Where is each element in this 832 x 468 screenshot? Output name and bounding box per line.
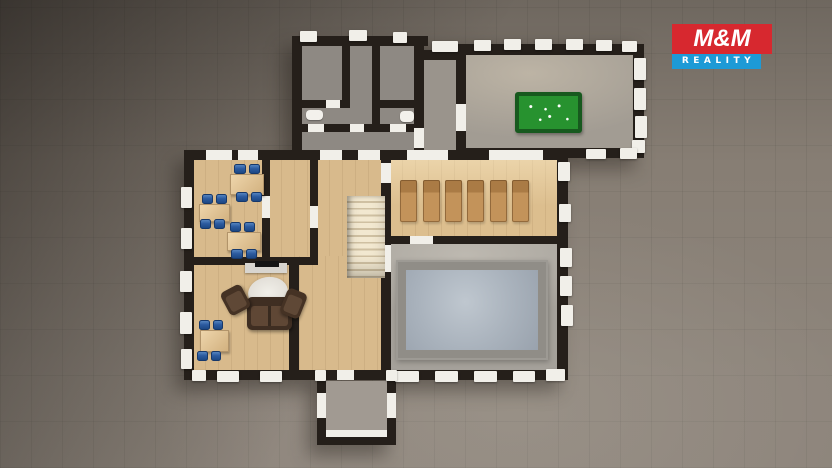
sanitary-fixture (400, 111, 414, 122)
wall-pillar (504, 39, 521, 50)
window-opening (489, 150, 543, 160)
lounger (423, 180, 440, 222)
wall-pillar (560, 248, 572, 267)
wall-pillar (635, 116, 647, 138)
door-opening (320, 150, 342, 160)
door-opening (308, 124, 324, 132)
door-opening (381, 163, 391, 183)
lounger (445, 180, 462, 222)
wall-pillar (192, 370, 206, 381)
wall-pillar (315, 370, 326, 381)
wall-pillar (634, 88, 646, 110)
brand-logo: M&M REALITY (672, 24, 772, 69)
wall-segment (184, 370, 397, 380)
wall-pillar (395, 371, 419, 382)
door-opening (410, 236, 433, 244)
door-opening (310, 206, 318, 228)
lounger (512, 180, 529, 222)
window-opening (238, 150, 258, 160)
pool-water (406, 270, 538, 350)
billiard-table (515, 92, 582, 133)
office-chairs (236, 192, 262, 202)
meeting-desk (200, 330, 229, 352)
wall-pillar (180, 312, 192, 334)
wall-pillar (596, 40, 612, 51)
door-opening (262, 196, 270, 218)
door-opening (317, 393, 326, 418)
wall-pillar (561, 305, 573, 326)
wall-pillar (386, 370, 397, 381)
floorplan-3d-render: M&M REALITY (0, 0, 832, 468)
wall-pillar (180, 271, 192, 292)
threshold-trim (326, 430, 387, 437)
door-opening (326, 100, 340, 108)
wall-pillar (558, 162, 570, 181)
wall-pillar (560, 276, 572, 296)
tv (255, 261, 279, 267)
wall-pillar (260, 371, 282, 382)
wall-pillar (586, 149, 606, 159)
desk-chairs (197, 351, 221, 361)
lounger (400, 180, 417, 222)
door-opening (390, 124, 406, 132)
office-chairs (230, 222, 255, 232)
door-opening (337, 370, 354, 380)
door-opening (456, 104, 466, 131)
wall-pillar (535, 39, 552, 50)
wall-pillar (181, 228, 192, 249)
window-opening (407, 150, 448, 160)
wall-pillar (393, 32, 407, 43)
wall-segment (184, 150, 194, 380)
wall-segment (372, 42, 380, 130)
wall-segment (292, 36, 302, 160)
office-chairs (231, 249, 257, 259)
wall-pillar (474, 40, 491, 51)
wall-pillar (634, 58, 646, 80)
wall-pillar (622, 41, 637, 52)
wall-pillar (435, 371, 458, 382)
wall-pillar (300, 31, 317, 42)
wall-pillar (513, 371, 535, 382)
wall-segment (342, 42, 350, 108)
wall-segment (378, 100, 418, 108)
door-opening (387, 393, 396, 418)
wall-pillar (217, 371, 239, 382)
wall-pillar (181, 349, 192, 369)
wall-pillar (181, 187, 192, 208)
logo-reality-text: REALITY (672, 54, 761, 69)
staircase (347, 196, 385, 278)
desk-chairs (199, 320, 223, 330)
wall-pillar (620, 148, 637, 159)
floor-middle-room (424, 56, 458, 152)
wall-pillar (474, 371, 497, 382)
wall-pillar (566, 39, 583, 50)
wall-pillar (349, 30, 367, 41)
logo-mm-text: M&M (672, 24, 772, 54)
wall-segment (298, 100, 350, 108)
lounger (467, 180, 484, 222)
wall-pillar (432, 41, 458, 52)
door-opening (358, 150, 380, 160)
wall-pillar (546, 369, 565, 381)
sanitary-fixture (306, 110, 323, 120)
office-chairs (234, 164, 260, 174)
door-opening (350, 124, 364, 132)
door-opening (414, 128, 424, 148)
wall-pillar (559, 204, 571, 222)
office-chairs (200, 219, 225, 229)
wall-segment (317, 437, 396, 445)
floor-corridor-room (268, 158, 312, 259)
window-opening (206, 150, 232, 160)
office-chairs (202, 194, 227, 204)
lounger (490, 180, 507, 222)
